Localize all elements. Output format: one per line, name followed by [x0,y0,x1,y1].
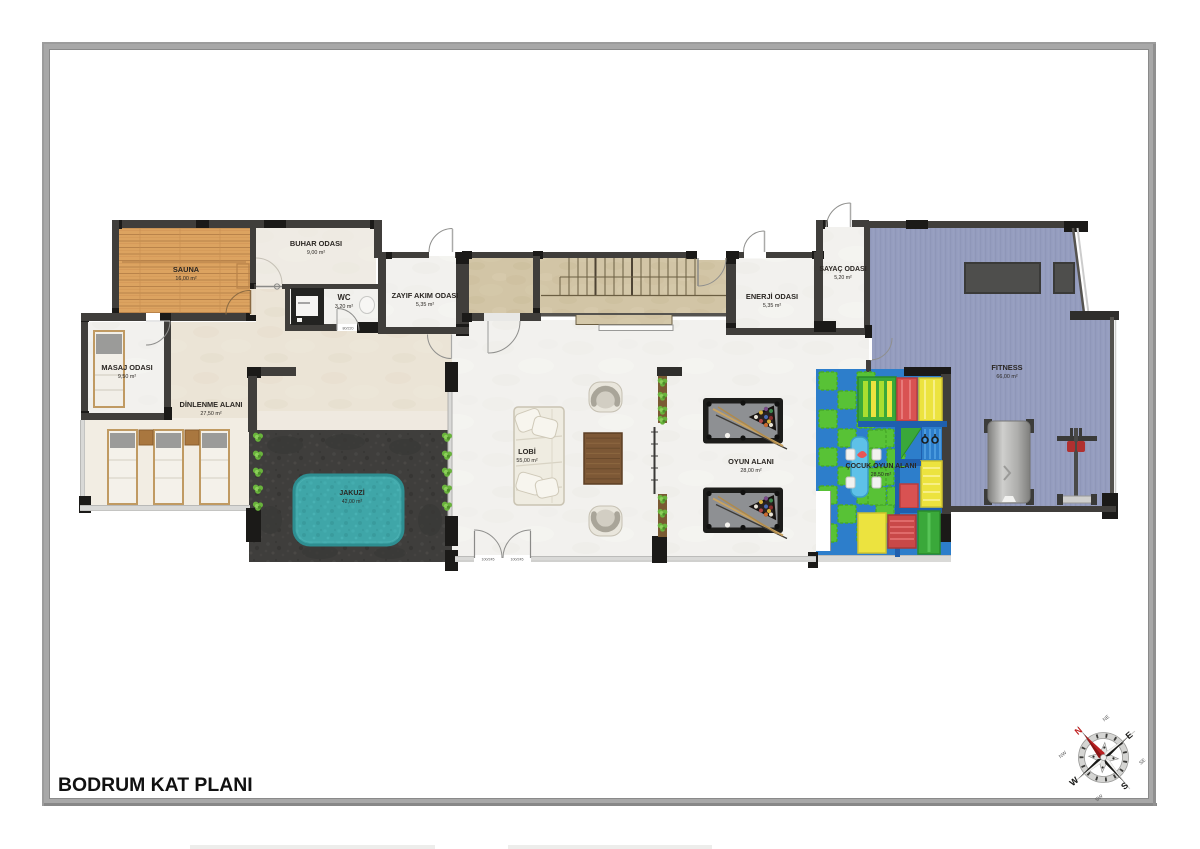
svg-text:SAYAÇ ODASI: SAYAÇ ODASI [819,266,866,273]
svg-text:5,35 m²: 5,35 m² [763,303,781,309]
svg-text:OYUN ALANI: OYUN ALANI [728,457,774,466]
svg-text:JAKUZİ: JAKUZİ [339,489,364,497]
svg-text:FITNESS: FITNESS [991,363,1022,372]
svg-text:ÇOCUK OYUN ALANI: ÇOCUK OYUN ALANI [846,463,917,470]
svg-text:MASAJ ODASI: MASAJ ODASI [101,363,152,372]
svg-text:27,50 m²: 27,50 m² [200,411,221,417]
svg-text:9,00 m²: 9,00 m² [307,250,325,256]
svg-text:ENERJİ ODASI: ENERJİ ODASI [746,292,798,301]
svg-text:WC: WC [338,293,351,302]
svg-text:BODRUM KAT PLANI: BODRUM KAT PLANI [58,774,253,796]
svg-text:5,20 m²: 5,20 m² [834,275,852,281]
svg-text:28,00 m²: 28,00 m² [740,468,761,474]
svg-text:BUHAR ODASI: BUHAR ODASI [290,239,342,248]
svg-text:66,00 m²: 66,00 m² [996,374,1017,380]
svg-text:9,50 m²: 9,50 m² [118,374,136,380]
svg-text:28,50 m²: 28,50 m² [871,472,892,478]
svg-text:SAUNA: SAUNA [173,265,200,274]
svg-text:42,00 m²: 42,00 m² [342,499,363,505]
svg-text:3,20 m²: 3,20 m² [335,304,353,310]
svg-text:55,00 m²: 55,00 m² [516,458,537,464]
svg-text:LOBİ: LOBİ [518,447,536,456]
svg-text:5,35 m²: 5,35 m² [416,302,434,308]
svg-text:16,00 m²: 16,00 m² [175,276,196,282]
svg-text:100/245: 100/245 [482,558,495,562]
svg-text:80/220: 80/220 [343,327,354,331]
svg-text:DİNLENME ALANI: DİNLENME ALANI [180,400,243,409]
svg-text:100/245: 100/245 [511,558,524,562]
svg-text:ZAYIF AKIM ODASI: ZAYIF AKIM ODASI [392,291,459,300]
